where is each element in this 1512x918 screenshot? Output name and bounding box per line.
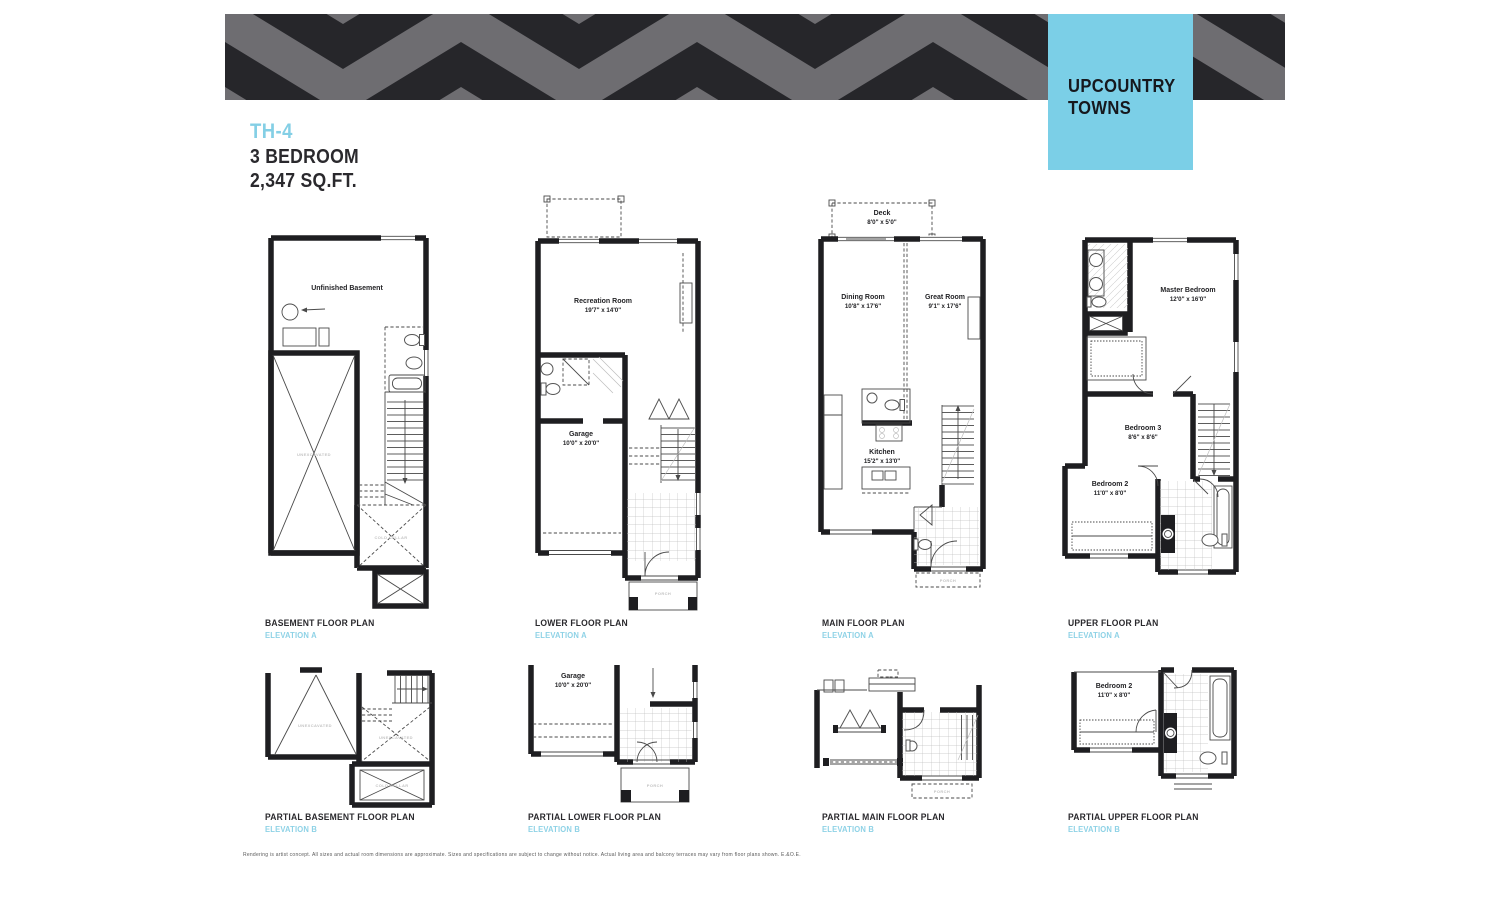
caption-elevation: ELEVATION B [528,825,661,834]
partial-lower-caption: PARTIAL LOWER FLOOR PLAN ELEVATION B [528,812,668,834]
bedroom2-closet [1072,466,1158,550]
room-label-garage: Garage [569,431,593,438]
upper-caption: UPPER FLOOR PLAN ELEVATION A [1068,618,1163,640]
room-dims-great: 9'1" x 17'6" [929,303,962,310]
caption-title: UPPER FLOOR PLAN [1068,618,1158,628]
unexcavated-area: UNEXCAVATED [273,355,355,551]
stairs [359,392,426,505]
closet-doors [649,399,689,419]
lower-floor-plan-drawing: PORCH Recreation Room 19'7" x 14'0" Gara… [533,193,703,618]
bathroom [1163,670,1230,789]
brand-line1: UPCOUNTRY [1068,76,1183,98]
window [823,758,903,766]
french-doors [833,710,886,733]
room-dims-bed3: 8'6" x 8'6" [1128,434,1158,441]
caption-title: PARTIAL LOWER FLOOR PLAN [528,812,661,822]
room-dims-garage: 10'0" x 20'0" [555,682,591,689]
upper-floor-plan-drawing: Master Bedroom 12'0" x 16'0" Bedroom 3 8… [1058,234,1243,582]
room-label-great: Great Room [925,294,965,301]
caption-elevation: ELEVATION A [265,631,375,640]
stairs [958,715,978,760]
room-label-rec: Recreation Room [574,298,632,305]
deck: Deck 8'0" x 5'0" [829,200,935,240]
brand-line2: TOWNS [1068,98,1183,120]
caption-title: BASEMENT FLOOR PLAN [265,618,375,628]
room-dims-deck: 8'0" x 5'0" [867,219,897,226]
main-floor-plan-drawing: Deck 8'0" x 5'0" [816,197,988,589]
brochure-page: UPCOUNTRY TOWNS TH-4 3 BEDROOM 2,347 SQ.… [0,0,1512,918]
room-label-deck: Deck [874,210,891,217]
garage-door [533,724,613,756]
ensuite-bath [1087,244,1128,333]
svg-text:PORCH: PORCH [647,783,663,788]
bedroom2 [1080,710,1156,752]
lower-caption: LOWER FLOOR PLAN ELEVATION A [535,618,633,640]
powder-room [862,389,910,423]
room-dims-dining: 10'8" x 17'6" [845,303,881,310]
caption-elevation: ELEVATION B [822,825,945,834]
porch: PORCH [621,768,689,802]
furnace-icon [283,328,329,346]
partial-basement-caption: PARTIAL BASEMENT FLOOR PLAN ELEVATION B [265,812,423,834]
room-dims-bed2: 11'0" x 8'0" [1094,490,1127,497]
caption-title: MAIN FLOOR PLAN [822,618,905,628]
svg-text:PORCH: PORCH [655,591,671,596]
stairs [942,405,974,507]
kitchen-fixtures [824,395,910,493]
partial-main-plan-drawing: PORCH [812,660,987,802]
basement-floor-plan-drawing: UNEXCAVATED COLD CELLAR [263,232,435,614]
svg-text:COLD CELLAR: COLD CELLAR [374,535,407,540]
room-label-bed3: Bedroom 3 [1125,425,1162,432]
porch: PORCH [912,784,972,798]
svg-text:PORCH: PORCH [940,578,956,583]
porch: PORCH [916,573,980,587]
foyer-tile-floor [620,708,692,764]
room-label-bed2: Bedroom 2 [1092,481,1129,488]
partial-main-caption: PARTIAL MAIN FLOOR PLAN ELEVATION B [822,812,951,834]
room-dims-master: 12'0" x 16'0" [1170,296,1206,303]
unexcavated-right: UNEXCAVATED [362,707,430,761]
cold-cellar-area: COLD CELLAR [357,505,426,604]
column-line [904,243,907,421]
svg-text:COLD CELLAR: COLD CELLAR [375,783,408,788]
caption-elevation: ELEVATION A [1068,631,1158,640]
unit-title-block: TH-4 3 BEDROOM 2,347 SQ.FT. [250,119,374,193]
foyer-tile-floor [627,493,696,580]
room-dims-bed2: 11'0" x 8'0" [1098,692,1131,699]
bedroom-doors [1133,374,1191,394]
room-label-kitchen: Kitchen [869,449,895,456]
main-bath [1160,479,1232,570]
partial-lower-plan-drawing: PORCH Garage 10'0" x 20'0" [525,662,702,812]
caption-title: PARTIAL BASEMENT FLOOR PLAN [265,812,415,822]
brand-box: UPCOUNTRY TOWNS [1048,14,1193,170]
svg-text:UNEXCAVATED: UNEXCAVATED [379,735,413,740]
room-dims-rec: 19'7" x 14'0" [585,307,621,314]
disclaimer-text: Rendering is artist concept. All sizes a… [243,852,801,858]
stairs [629,425,695,483]
room-label-bed2: Bedroom 2 [1096,683,1133,690]
cold-cellar: COLD CELLAR [360,770,424,800]
stair-arrow [651,668,656,698]
partial-upper-plan-drawing: Bedroom 2 11'0" x 8'0" [1056,658,1241,808]
foyer [914,505,979,571]
caption-elevation: ELEVATION B [265,825,415,834]
room-dims-kitchen: 15'2" x 13'0" [864,458,900,465]
kitchen-island-partial [824,670,915,692]
room-label-master: Master Bedroom [1160,287,1215,294]
deck-above-outline [544,196,624,237]
svg-text:UNEXCAVATED: UNEXCAVATED [298,723,332,728]
room-label-dining: Dining Room [841,294,885,301]
partial-basement-plan-drawing: UNEXCAVATED UNEXCAVATED COLD CELLAR [262,667,437,809]
caption-title: LOWER FLOOR PLAN [535,618,628,628]
partial-upper-caption: PARTIAL UPPER FLOOR PLAN ELEVATION B [1068,812,1205,834]
unit-model: TH-4 [250,119,359,145]
windows [381,235,430,377]
sump-pump-icon [282,304,325,320]
caption-title: PARTIAL UPPER FLOOR PLAN [1068,812,1199,822]
svg-text:UNEXCAVATED: UNEXCAVATED [297,452,331,457]
caption-title: PARTIAL MAIN FLOOR PLAN [822,812,945,822]
unexcavated-left: UNEXCAVATED [275,675,356,754]
caption-elevation: ELEVATION A [822,631,905,640]
stairs [1198,400,1230,478]
garage-door [543,533,621,555]
room-label-garage: Garage [561,673,585,680]
caption-elevation: ELEVATION B [1068,825,1199,834]
svg-text:PORCH: PORCH [934,789,950,794]
room-label-basement: Unfinished Basement [311,285,383,292]
caption-elevation: ELEVATION A [535,631,628,640]
walk-in-closet [1087,337,1146,380]
bath-rough-in [385,327,425,392]
room-dims-garage: 10'0" x 20'0" [563,440,599,447]
porch: PORCH [629,582,697,610]
basement-caption: BASEMENT FLOOR PLAN ELEVATION A [265,618,380,640]
bathroom-fixtures [541,357,623,395]
unit-area: 2,347 SQ.FT. [250,169,359,193]
unit-type: 3 BEDROOM [250,145,359,169]
main-caption: MAIN FLOOR PLAN ELEVATION A [822,618,909,640]
